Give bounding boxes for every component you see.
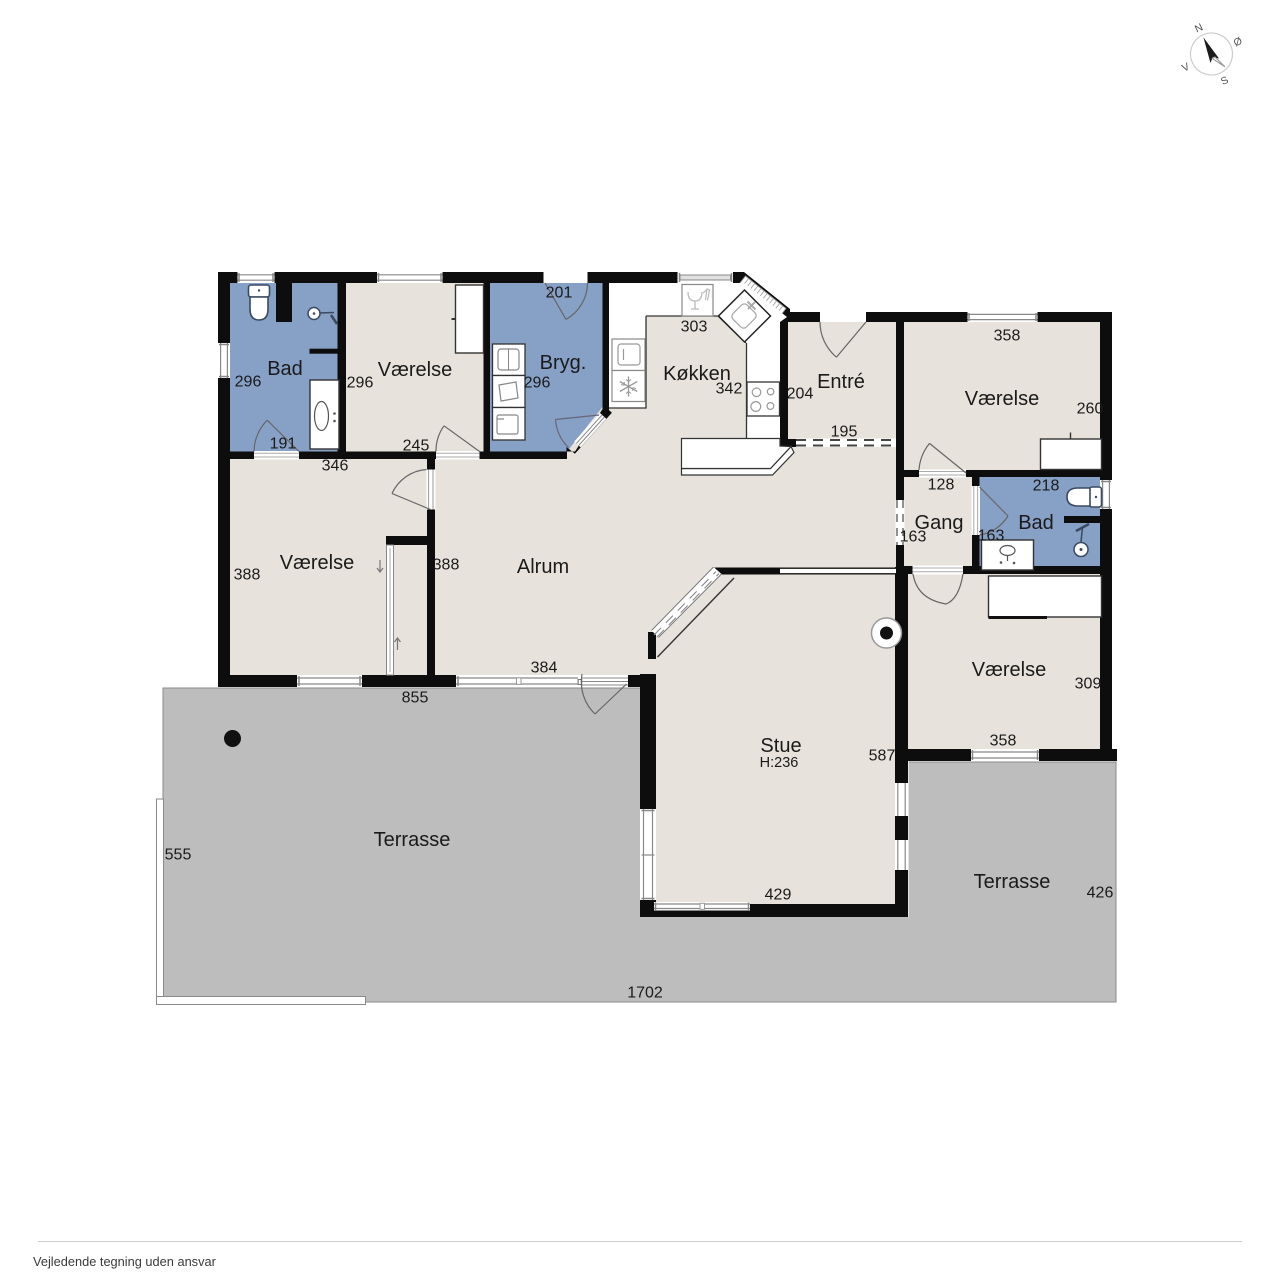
svg-text:426: 426 [1087, 885, 1114, 902]
svg-text:218: 218 [1033, 478, 1060, 495]
svg-text:Alrum: Alrum [517, 556, 569, 578]
svg-text:201: 201 [546, 285, 573, 302]
svg-text:Bad: Bad [267, 358, 303, 380]
svg-text:Værelse: Værelse [972, 659, 1046, 681]
svg-text:1702: 1702 [627, 985, 663, 1002]
svg-text:Værelse: Værelse [965, 388, 1039, 410]
svg-text:587: 587 [869, 748, 896, 765]
svg-text:358: 358 [990, 733, 1017, 750]
svg-text:384: 384 [531, 660, 558, 677]
svg-text:H:236: H:236 [760, 755, 799, 771]
svg-text:388: 388 [433, 557, 460, 574]
svg-text:Vejledende tegning uden ansvar: Vejledende tegning uden ansvar [33, 1254, 217, 1269]
svg-text:128: 128 [928, 477, 955, 494]
svg-text:342: 342 [716, 381, 743, 398]
svg-text:163: 163 [900, 529, 927, 546]
svg-text:Entré: Entré [817, 371, 865, 393]
svg-text:Bryg.: Bryg. [540, 352, 587, 374]
svg-text:260: 260 [1077, 401, 1104, 418]
svg-text:Terrasse: Terrasse [974, 871, 1051, 893]
svg-text:191: 191 [270, 436, 297, 453]
svg-text:388: 388 [234, 567, 261, 584]
svg-text:Terrasse: Terrasse [374, 829, 451, 851]
svg-text:303: 303 [681, 319, 708, 336]
svg-text:296: 296 [524, 375, 551, 392]
svg-text:204: 204 [787, 386, 814, 403]
svg-text:Værelse: Værelse [280, 552, 354, 574]
svg-text:429: 429 [765, 887, 792, 904]
svg-text:Værelse: Værelse [378, 359, 452, 381]
svg-text:Bad: Bad [1018, 512, 1054, 534]
svg-text:309: 309 [1075, 676, 1102, 693]
svg-text:296: 296 [347, 375, 374, 392]
svg-text:195: 195 [831, 424, 858, 441]
svg-text:555: 555 [165, 847, 192, 864]
svg-text:Stue: Stue [760, 735, 801, 757]
svg-text:163: 163 [978, 528, 1005, 545]
svg-text:855: 855 [402, 690, 429, 707]
svg-text:358: 358 [994, 328, 1021, 345]
svg-text:245: 245 [403, 438, 430, 455]
svg-text:346: 346 [322, 458, 349, 475]
svg-text:296: 296 [235, 374, 262, 391]
